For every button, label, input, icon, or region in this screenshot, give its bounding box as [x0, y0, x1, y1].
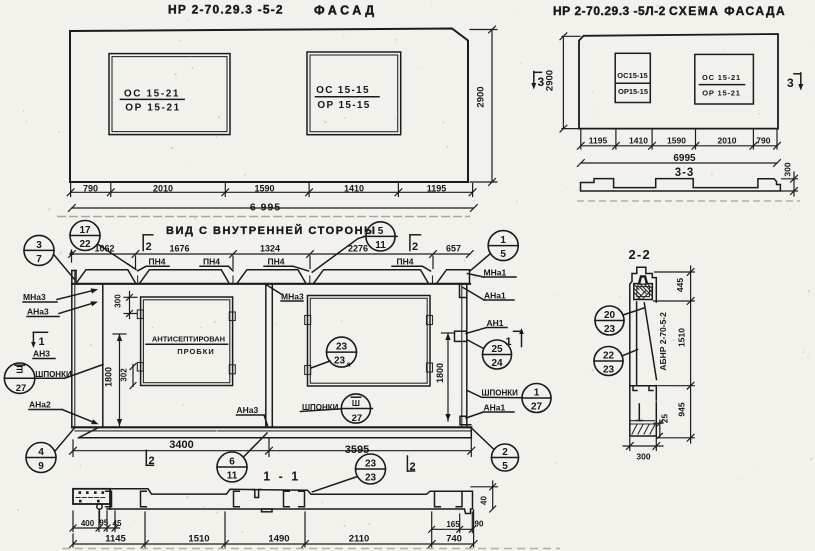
- svg-text:23: 23: [365, 459, 377, 470]
- svg-text:11: 11: [375, 240, 386, 251]
- svg-text:27: 27: [16, 383, 27, 394]
- svg-text:2: 2: [410, 461, 416, 473]
- svg-text:1490: 1490: [268, 534, 289, 545]
- svg-text:400: 400: [81, 519, 95, 528]
- svg-text:3: 3: [787, 76, 794, 90]
- svg-text:2010: 2010: [718, 136, 737, 146]
- svg-text:НР 2-70.29.3 -5-2: НР 2-70.29.3 -5-2: [168, 3, 284, 17]
- svg-text:6: 6: [229, 457, 235, 468]
- svg-text:3400: 3400: [169, 439, 193, 451]
- svg-text:40: 40: [480, 496, 489, 505]
- svg-text:1410: 1410: [629, 136, 648, 146]
- svg-text:3-3: 3-3: [675, 167, 695, 179]
- svg-text:4: 4: [38, 447, 44, 458]
- svg-text:ШПОНКИ: ШПОНКИ: [35, 370, 72, 379]
- svg-text:а: а: [347, 362, 351, 369]
- svg-text:ОР 15-15: ОР 15-15: [317, 100, 370, 111]
- svg-text:2110: 2110: [349, 534, 370, 545]
- svg-text:1590: 1590: [254, 183, 274, 193]
- svg-text:20: 20: [604, 310, 616, 321]
- svg-text:945: 945: [676, 402, 686, 416]
- svg-text:2900: 2900: [476, 86, 487, 107]
- svg-text:ПН4: ПН4: [268, 257, 285, 267]
- svg-text:23: 23: [365, 473, 377, 484]
- svg-text:3: 3: [36, 240, 42, 251]
- svg-text:300: 300: [114, 294, 123, 308]
- svg-text:6 995: 6 995: [250, 202, 281, 214]
- svg-text:23: 23: [336, 342, 348, 353]
- svg-text:2900: 2900: [545, 70, 556, 91]
- svg-text:11: 11: [227, 471, 238, 482]
- svg-text:МНа1: МНа1: [484, 268, 507, 278]
- svg-text:23: 23: [604, 324, 616, 335]
- svg-text:АНТИСЕПТИРОВАН: АНТИСЕПТИРОВАН: [152, 335, 225, 344]
- svg-text:1510: 1510: [188, 534, 209, 545]
- svg-text:5: 5: [500, 249, 506, 260]
- svg-text:Ш: Ш: [352, 399, 360, 408]
- svg-text:6995: 6995: [673, 153, 696, 164]
- svg-text:1195: 1195: [427, 183, 447, 193]
- svg-text:1: 1: [39, 336, 45, 348]
- svg-text:1676: 1676: [169, 244, 189, 254]
- svg-text:302: 302: [120, 368, 129, 382]
- svg-text:1324: 1324: [260, 244, 280, 254]
- svg-text:3: 3: [538, 75, 545, 89]
- svg-text:ОР15-15: ОР15-15: [618, 87, 648, 96]
- svg-text:ОС 15-21: ОС 15-21: [702, 73, 741, 82]
- svg-text:ПН4: ПН4: [149, 257, 166, 267]
- svg-text:2: 2: [502, 447, 508, 458]
- svg-text:5: 5: [502, 461, 508, 472]
- svg-text:АНа2: АНа2: [29, 400, 51, 410]
- svg-text:445: 445: [675, 278, 685, 292]
- svg-text:24: 24: [491, 358, 503, 369]
- svg-text:25: 25: [661, 414, 670, 423]
- svg-text:ОР 15-21: ОР 15-21: [125, 103, 181, 114]
- svg-text:1510: 1510: [676, 328, 686, 347]
- svg-text:1145: 1145: [105, 534, 126, 545]
- svg-text:2010: 2010: [153, 183, 173, 193]
- svg-text:2276: 2276: [348, 244, 368, 254]
- svg-text:Ш: Ш: [16, 365, 25, 373]
- svg-text:22: 22: [603, 351, 615, 362]
- svg-text:740: 740: [446, 534, 462, 545]
- svg-text:657: 657: [446, 244, 461, 254]
- svg-text:АНа3: АНа3: [27, 307, 49, 317]
- svg-text:23: 23: [603, 365, 615, 376]
- svg-text:95: 95: [99, 519, 108, 528]
- svg-text:300: 300: [783, 162, 793, 176]
- svg-text:АБНР 2-70-5-2: АБНР 2-70-5-2: [658, 312, 668, 371]
- svg-text:5: 5: [378, 226, 384, 237]
- svg-text:2: 2: [146, 241, 152, 253]
- svg-text:790: 790: [756, 136, 770, 146]
- svg-text:27: 27: [531, 402, 543, 413]
- svg-text:1195: 1195: [589, 136, 608, 146]
- svg-text:МНа3: МНа3: [23, 292, 46, 302]
- svg-text:1 - 1: 1 - 1: [263, 470, 301, 484]
- svg-text:1: 1: [534, 388, 540, 399]
- svg-text:ШПОНКИ: ШПОНКИ: [482, 389, 519, 398]
- svg-text:3595: 3595: [345, 444, 369, 456]
- svg-text:1590: 1590: [667, 136, 686, 146]
- svg-text:АНа1: АНа1: [484, 403, 506, 413]
- svg-text:МНа3: МНа3: [281, 292, 304, 302]
- svg-text:ОС 15-15: ОС 15-15: [316, 85, 370, 96]
- svg-text:ВИД С ВНУТРЕННЕЙ СТОРОНЫ: ВИД С ВНУТРЕННЕЙ СТОРОНЫ: [166, 224, 376, 237]
- svg-text:1: 1: [500, 235, 506, 246]
- svg-text:45: 45: [113, 519, 122, 528]
- svg-text:АН3: АН3: [33, 349, 50, 359]
- svg-text:1410: 1410: [344, 183, 364, 193]
- svg-text:17: 17: [79, 225, 91, 236]
- svg-text:ПН4: ПН4: [203, 257, 220, 267]
- svg-text:300: 300: [636, 452, 650, 462]
- svg-text:2: 2: [149, 455, 155, 467]
- svg-text:НР 2-70.29.3 -5Л-2: НР 2-70.29.3 -5Л-2: [553, 4, 666, 18]
- svg-text:СХЕМА ФАСАДА: СХЕМА ФАСАДА: [669, 4, 786, 18]
- svg-text:ОС 15-21: ОС 15-21: [124, 89, 180, 100]
- svg-text:7: 7: [36, 254, 42, 265]
- svg-text:27: 27: [352, 413, 363, 424]
- svg-text:90: 90: [475, 520, 484, 529]
- svg-text:2-2: 2-2: [629, 247, 651, 262]
- svg-text:2: 2: [412, 241, 418, 253]
- svg-text:ФАСАД: ФАСАД: [314, 4, 378, 18]
- svg-text:ПН4: ПН4: [397, 257, 414, 267]
- svg-text:790: 790: [83, 183, 98, 193]
- svg-text:9: 9: [38, 461, 44, 472]
- svg-text:АНа1: АНа1: [484, 291, 506, 301]
- svg-text:165: 165: [446, 520, 460, 529]
- svg-text:ОР 15-21: ОР 15-21: [702, 89, 741, 98]
- svg-text:23: 23: [334, 356, 346, 367]
- svg-text:АН1: АН1: [487, 318, 504, 328]
- svg-text:ПРОБКИ: ПРОБКИ: [177, 347, 215, 356]
- svg-text:АНа3: АНа3: [237, 405, 259, 415]
- svg-text:1800: 1800: [104, 367, 114, 387]
- svg-text:1800: 1800: [435, 363, 445, 383]
- svg-text:22: 22: [79, 239, 91, 250]
- svg-text:25: 25: [491, 344, 503, 355]
